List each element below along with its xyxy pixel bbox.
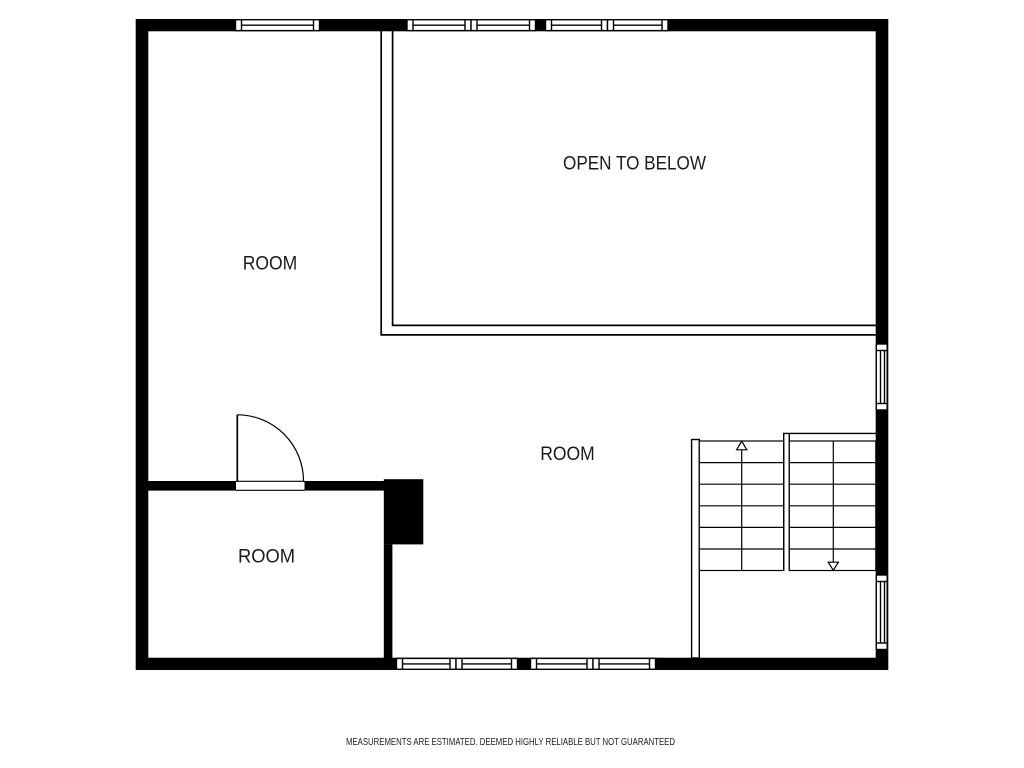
svg-text:OPEN TO BELOW: OPEN TO BELOW <box>563 152 706 174</box>
svg-text:ROOM: ROOM <box>238 546 295 568</box>
svg-text:ROOM: ROOM <box>540 443 595 465</box>
svg-text:MEASUREMENTS ARE ESTIMATED. DE: MEASUREMENTS ARE ESTIMATED. DEEMED HIGHL… <box>346 737 675 748</box>
svg-text:ROOM: ROOM <box>243 253 298 275</box>
